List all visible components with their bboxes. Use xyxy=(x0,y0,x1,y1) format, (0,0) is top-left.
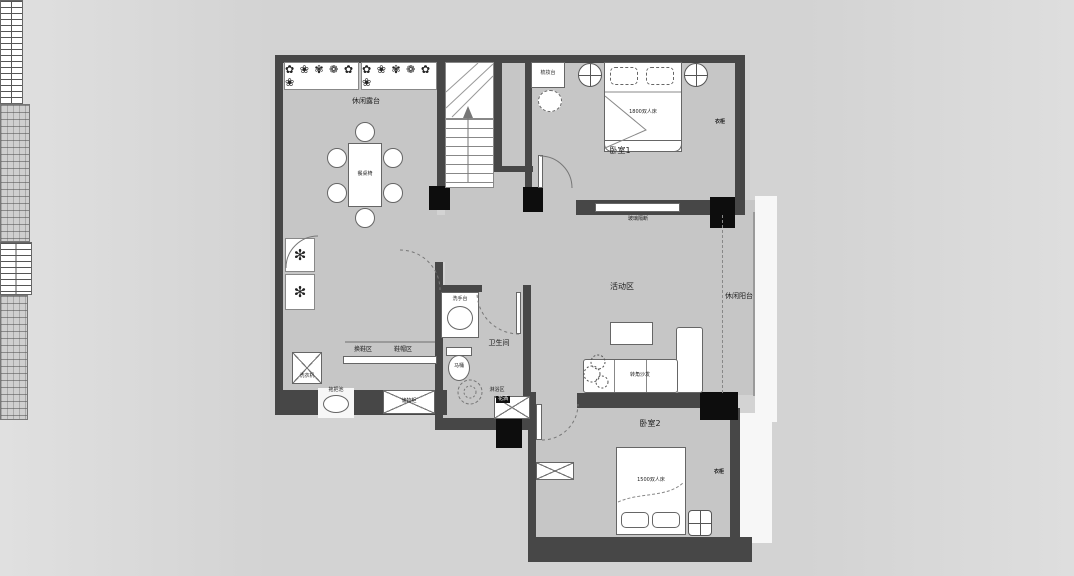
entry-cabinet-strip xyxy=(343,356,437,364)
bedroom2-cabinet xyxy=(536,462,574,480)
dining-chair xyxy=(383,183,403,203)
storage-cabinet-label: 储物柜 xyxy=(383,399,435,404)
plant-glyph: ✻ xyxy=(294,283,307,301)
column-balcony-bottom xyxy=(700,392,738,420)
activity-label: 活动区 xyxy=(598,283,646,291)
shoe-hat-label: 鞋帽区 xyxy=(388,347,418,353)
column-stair-left xyxy=(429,186,450,210)
balcony-outside xyxy=(755,196,777,422)
terrace-label: 休闲露台 xyxy=(336,98,396,105)
bathroom-door-leaf xyxy=(516,292,521,334)
stair-treads xyxy=(445,118,494,188)
washing-machine xyxy=(292,352,322,384)
nightstand-lamp-icon xyxy=(688,510,712,536)
bedroom2-shelf xyxy=(0,242,32,295)
sofa-seat-divider xyxy=(614,360,615,392)
shower-zone-label: 淋浴区 xyxy=(484,388,510,393)
dining-chair xyxy=(383,148,403,168)
wardrobe1-label: 衣柜 xyxy=(707,120,733,125)
desk-chair xyxy=(538,90,562,112)
balcony-rail xyxy=(753,212,755,396)
plant-icon: ✻ xyxy=(285,238,315,272)
wardrobe2 xyxy=(0,295,28,420)
plant-icon: ✻ xyxy=(285,274,315,310)
flower-glyphs: ✿ ❀ ✾ ❁ ✿ ❀ xyxy=(362,63,436,89)
wall-right-outer xyxy=(735,55,745,200)
flower-bed-icon: ✿ ❀ ✾ ❁ ✿ ❀ xyxy=(361,62,437,90)
bathroom-label: 卫生间 xyxy=(477,340,521,347)
dining-table-label: 餐桌椅 xyxy=(348,172,382,177)
dining-chair xyxy=(327,148,347,168)
nightstand-lamp-icon xyxy=(684,63,708,87)
bed2-label: 1500双人床 xyxy=(623,478,679,483)
wall-stairs-right xyxy=(494,62,502,172)
wardrobe2-label: 衣柜 xyxy=(706,470,732,475)
dining-chair xyxy=(327,183,347,203)
sofa-chaise xyxy=(676,327,703,393)
bedroom1-door-leaf xyxy=(538,155,543,188)
basin-bowl xyxy=(447,306,473,330)
dining-chair xyxy=(355,122,375,142)
column-stair-right xyxy=(523,187,543,212)
pillow xyxy=(621,512,649,528)
dining-chair xyxy=(355,208,375,228)
column-bath-bottom xyxy=(496,418,522,448)
balcony-divider xyxy=(722,215,723,393)
hall-opening-floor xyxy=(437,215,445,262)
shower-tag: 花洒 xyxy=(496,396,510,403)
bedroom1-label: 卧室1 xyxy=(595,147,645,155)
flower-bed-icon: ✿ ❀ ✾ ❁ ✿ ❀ xyxy=(284,62,359,90)
balcony-label: 休闲阳台 xyxy=(724,293,754,300)
wall-bathroom-top xyxy=(435,285,482,292)
wall-bedroom2-bottom xyxy=(528,537,752,562)
interior-window-label: 玻璃隔断 xyxy=(618,217,658,222)
entry-mat-line xyxy=(345,341,435,343)
wardrobe1 xyxy=(0,104,30,242)
flower-glyphs: ✿ ❀ ✾ ❁ ✿ ❀ xyxy=(285,63,358,89)
interior-window xyxy=(595,203,680,212)
shoe-change-label: 换鞋区 xyxy=(350,347,376,353)
pillow xyxy=(646,67,674,85)
pillow xyxy=(610,67,638,85)
wall-terrace-stairs xyxy=(437,62,445,188)
floor-plan-canvas: ✿ ❀ ✾ ❁ ✿ ❀ ✿ ❀ ✾ ❁ ✿ ❀ 休闲露台 餐桌椅 ✻ ✻ 换鞋区… xyxy=(0,0,1074,576)
plant-glyph: ✻ xyxy=(294,246,307,264)
washer-label: 洗衣机 xyxy=(292,374,322,379)
basin-label: 洗手台 xyxy=(441,297,479,302)
dresser-label: 梳妆台 xyxy=(531,71,565,76)
coffee-table xyxy=(610,322,653,345)
mop-pool-label: 拖把池 xyxy=(318,388,354,393)
bedroom2-door-leaf xyxy=(536,404,542,440)
bedroom2-label: 卧室2 xyxy=(628,420,672,428)
bedroom2-outside xyxy=(740,413,772,543)
nightstand-lamp-icon xyxy=(578,63,602,87)
wall-left xyxy=(275,55,283,415)
pillow xyxy=(652,512,680,528)
toilet-label: 马桶 xyxy=(448,364,470,369)
bed1-label: 1800双人床 xyxy=(615,110,671,115)
shelf-unit xyxy=(0,0,23,104)
wall-bedroom2-top xyxy=(577,393,705,408)
sofa-label: 转角沙发 xyxy=(620,373,660,378)
mop-pool xyxy=(323,395,349,413)
